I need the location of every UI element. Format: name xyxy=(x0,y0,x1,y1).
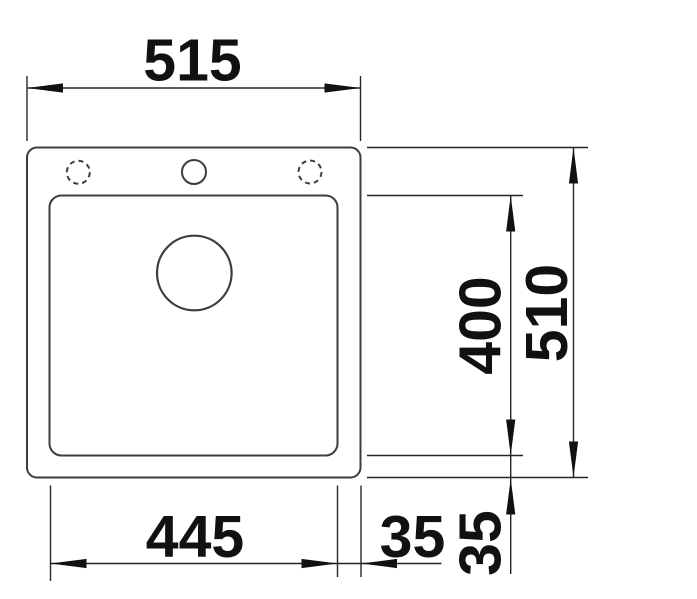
svg-text:400: 400 xyxy=(448,276,514,374)
svg-text:510: 510 xyxy=(514,264,580,362)
svg-text:445: 445 xyxy=(146,504,244,570)
svg-text:35: 35 xyxy=(380,504,446,570)
svg-text:35: 35 xyxy=(448,510,514,576)
svg-text:515: 515 xyxy=(143,28,241,94)
